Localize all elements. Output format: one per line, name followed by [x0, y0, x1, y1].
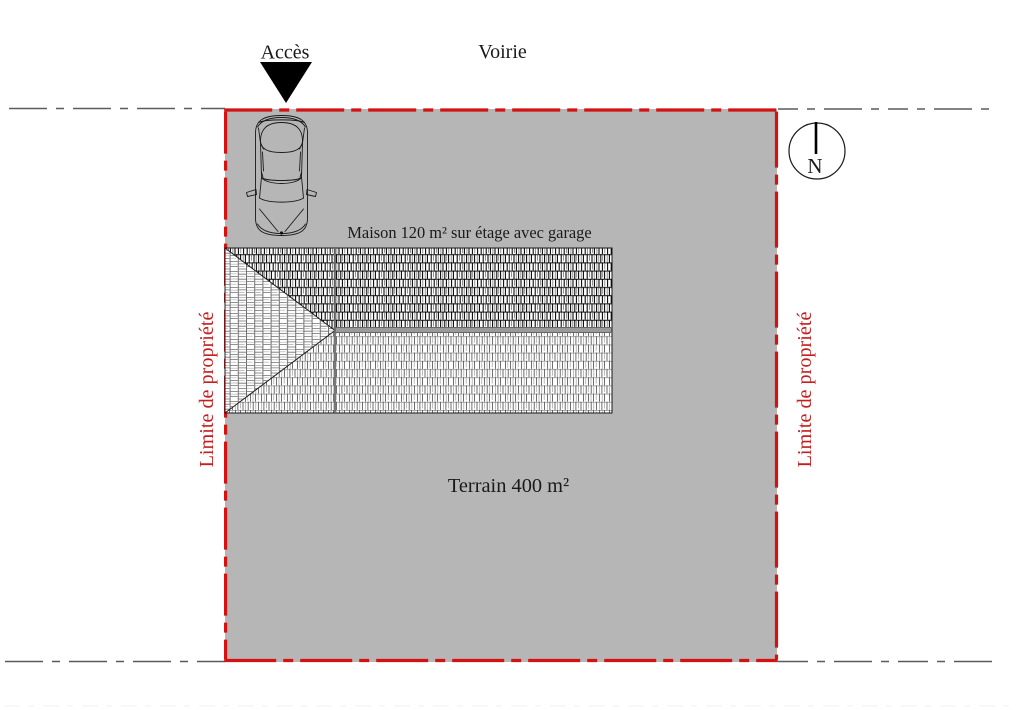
- svg-text:Terrain 400 m²: Terrain 400 m²: [448, 475, 569, 497]
- svg-text:Limite de propriété: Limite de propriété: [794, 312, 816, 468]
- svg-text:Limite de propriété: Limite de propriété: [196, 312, 218, 468]
- svg-text:Accès: Accès: [261, 42, 310, 64]
- svg-text:N: N: [807, 154, 822, 178]
- svg-text:Maison 120 m² sur étage avec g: Maison 120 m² sur étage avec garage: [347, 223, 591, 242]
- svg-text:Voirie: Voirie: [478, 41, 527, 63]
